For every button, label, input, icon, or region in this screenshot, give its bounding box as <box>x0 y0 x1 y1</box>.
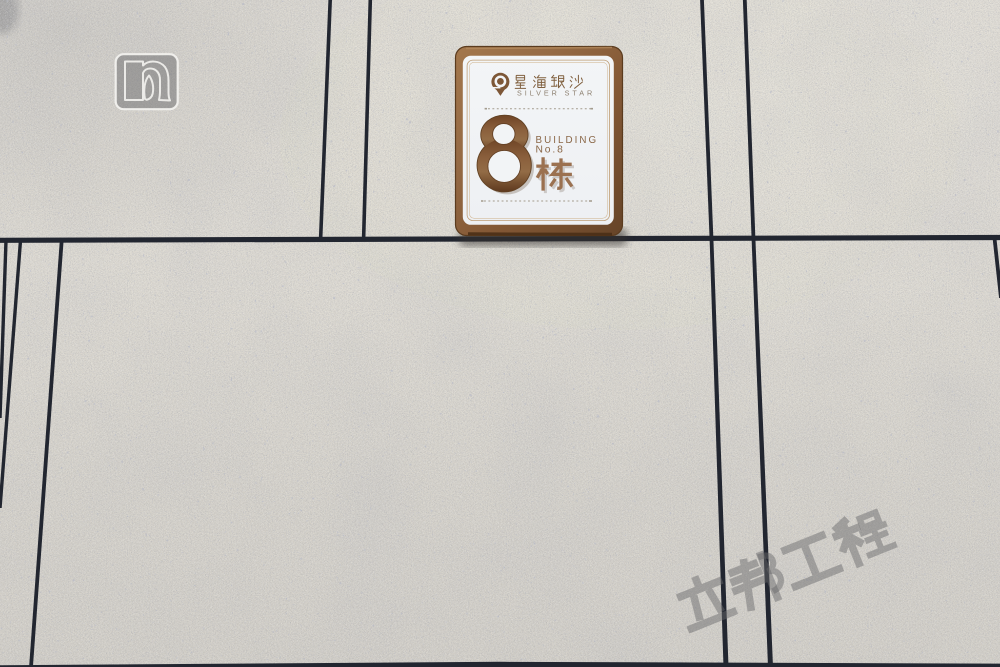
svg-text:SILVER STAR: SILVER STAR <box>517 88 595 97</box>
svg-text:No.8: No.8 <box>536 144 565 155</box>
